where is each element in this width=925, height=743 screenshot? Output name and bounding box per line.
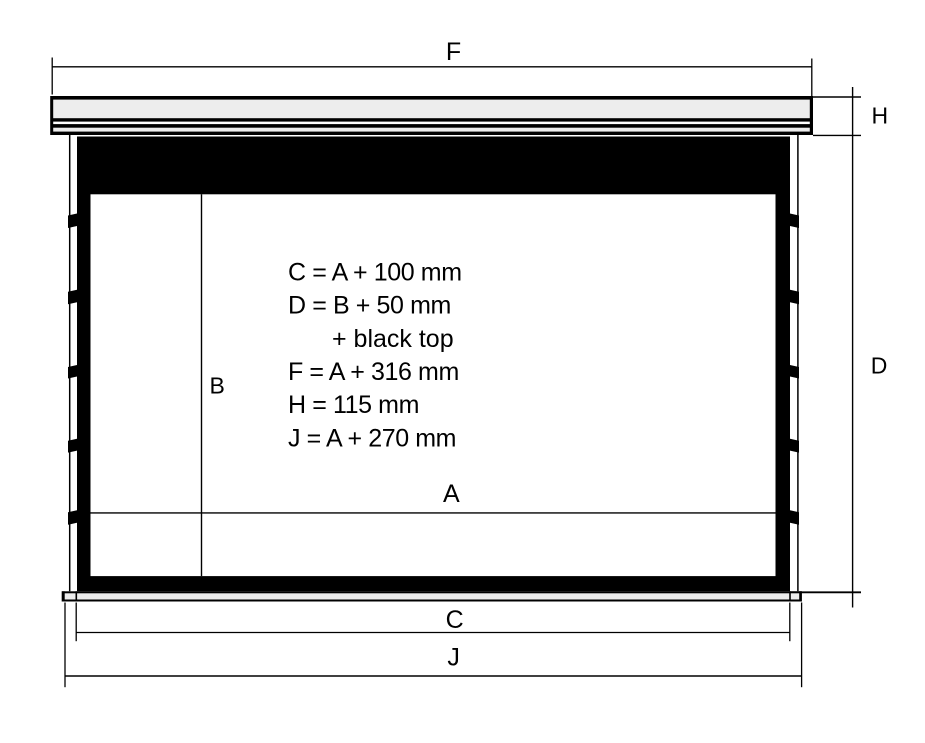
svg-text:D = B + 50 mm: D = B + 50 mm [288,292,451,320]
svg-text:F = A + 316 mm: F = A + 316 mm [288,358,459,386]
svg-text:B: B [210,372,225,398]
svg-text:C: C [446,606,464,634]
svg-text:H = 115 mm: H = 115 mm [288,391,419,419]
svg-text:C = A + 100 mm: C = A + 100 mm [288,258,462,286]
svg-text:J: J [447,644,460,672]
svg-text:J = A + 270 mm: J = A + 270 mm [288,424,456,452]
svg-text:+ black top: + black top [332,325,454,353]
svg-text:D: D [871,353,888,379]
svg-text:F: F [446,38,461,66]
svg-text:H: H [872,103,889,129]
svg-text:A: A [443,480,460,508]
